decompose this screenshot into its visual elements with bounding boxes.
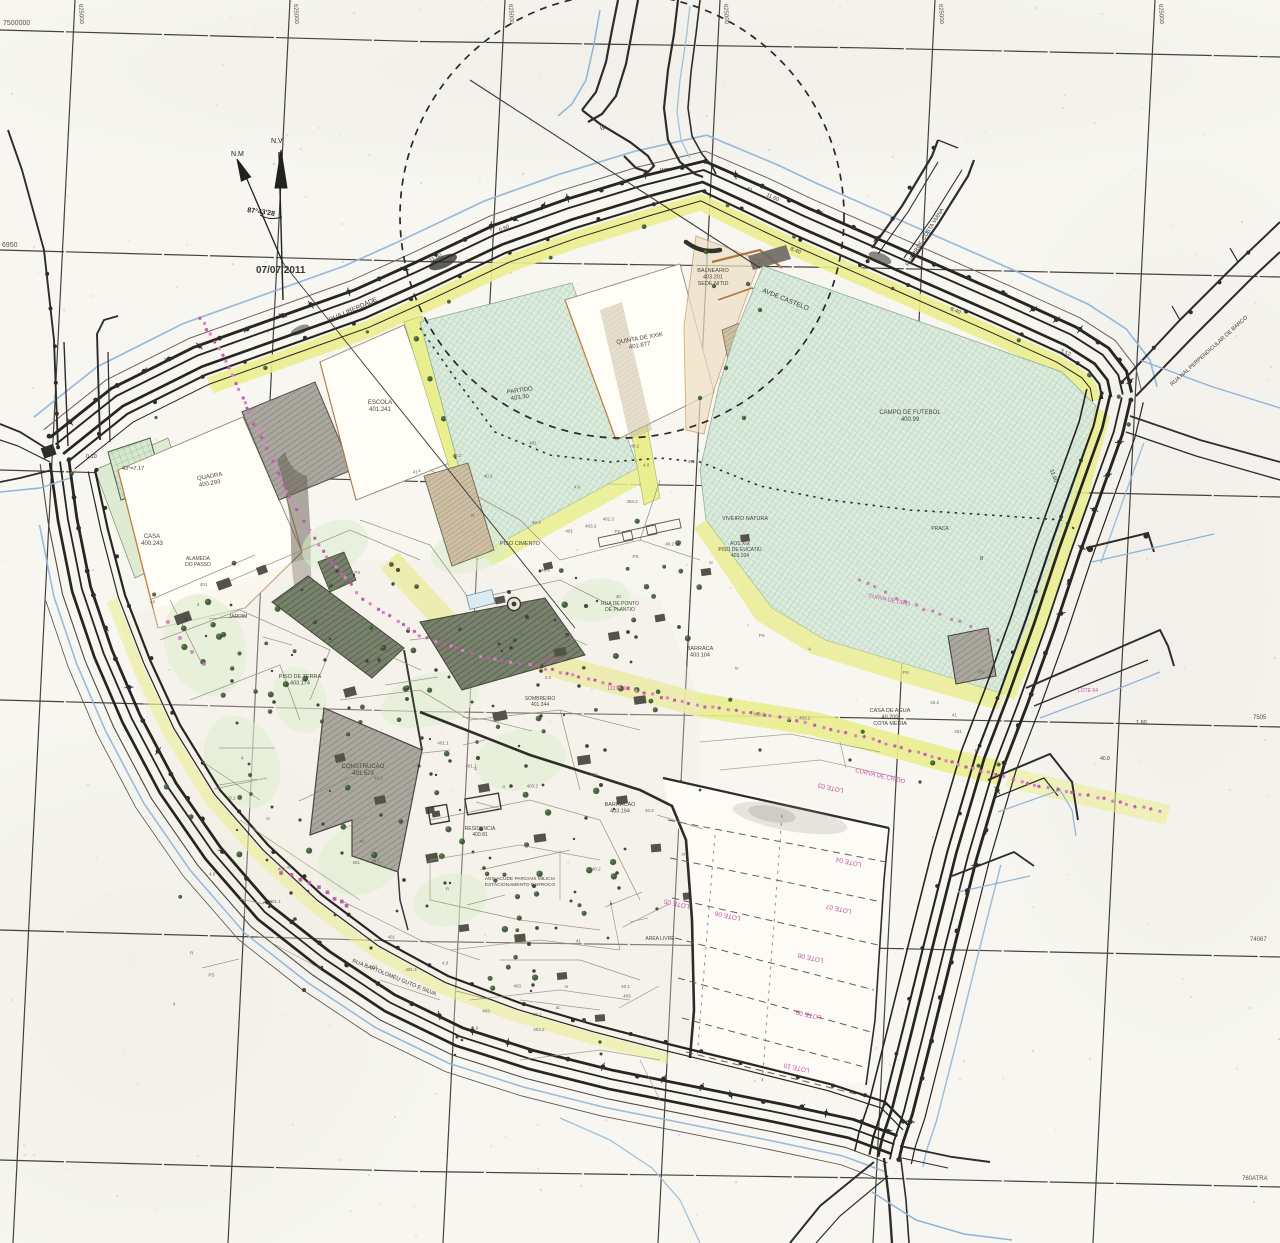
svg-text:400.243: 400.243 xyxy=(141,541,163,547)
svg-text:DE PLANTIO: DE PLANTIO xyxy=(605,607,635,613)
svg-text:sr: sr xyxy=(681,851,685,856)
svg-text:401.1: 401.1 xyxy=(465,764,477,769)
svg-text:760ATRA: 760ATRA xyxy=(1242,1176,1268,1182)
svg-text:sr: sr xyxy=(709,560,713,565)
svg-text:6950: 6950 xyxy=(2,242,18,249)
svg-text:625000: 625000 xyxy=(937,4,944,25)
svg-text:7505: 7505 xyxy=(1253,715,1267,721)
svg-text:40.8: 40.8 xyxy=(1100,756,1110,762)
svg-text:ac: ac xyxy=(556,1005,562,1010)
svg-text:DO PASSO: DO PASSO xyxy=(185,562,211,568)
svg-text:1.60: 1.60 xyxy=(1136,720,1147,726)
svg-text:403: 403 xyxy=(482,1008,490,1013)
svg-text:40.2: 40.2 xyxy=(484,474,493,479)
svg-text:403.2: 403.2 xyxy=(533,1027,545,1032)
svg-text:403.2: 403.2 xyxy=(626,499,638,504)
svg-text:625000: 625000 xyxy=(292,4,299,25)
svg-text:COTA MEDIA: COTA MEDIA xyxy=(873,721,907,727)
svg-text:400.99: 400.99 xyxy=(901,417,920,423)
svg-text:403: 403 xyxy=(370,964,378,969)
svg-text:40.2: 40.2 xyxy=(630,444,639,449)
svg-text:403.2: 403.2 xyxy=(527,784,539,789)
svg-text:401: 401 xyxy=(387,934,395,939)
svg-text:7500000: 7500000 xyxy=(3,20,30,27)
svg-text:40: 40 xyxy=(150,600,156,605)
svg-text:40.200: 40.200 xyxy=(882,715,899,721)
svg-text:PS: PS xyxy=(903,670,909,675)
svg-text:sr: sr xyxy=(266,816,270,821)
svg-text:403: 403 xyxy=(513,983,521,988)
svg-text:625000: 625000 xyxy=(77,4,84,25)
svg-text:401.344: 401.344 xyxy=(531,702,549,708)
svg-text:400.81: 400.81 xyxy=(472,832,488,838)
svg-text:40.2: 40.2 xyxy=(532,520,541,525)
svg-text:625000: 625000 xyxy=(507,4,514,25)
svg-text:401: 401 xyxy=(278,867,286,872)
svg-text:ANT. ACUDE PARCIAIS MILICIA: ANT. ACUDE PARCIAIS MILICIA xyxy=(485,876,556,882)
svg-text:41: 41 xyxy=(413,469,419,474)
svg-text:401: 401 xyxy=(565,528,573,533)
svg-text:625000: 625000 xyxy=(1157,4,1164,25)
svg-text:403.2: 403.2 xyxy=(753,712,765,717)
svg-text:41: 41 xyxy=(576,938,582,943)
svg-text:PS: PS xyxy=(978,669,984,674)
svg-text:40.1: 40.1 xyxy=(227,795,236,800)
svg-text:ESTACIONAMENTO BARROCO: ESTACIONAMENTO BARROCO xyxy=(485,882,555,888)
svg-text:PS: PS xyxy=(632,554,638,559)
svg-text:401.1: 401.1 xyxy=(437,741,449,746)
svg-text:4.0: 4.0 xyxy=(472,1025,479,1030)
svg-text:40.1: 40.1 xyxy=(621,984,630,989)
svg-text:W: W xyxy=(600,126,606,132)
svg-text:40.2: 40.2 xyxy=(665,541,674,546)
svg-text:40.2: 40.2 xyxy=(930,700,939,705)
svg-text:40.2: 40.2 xyxy=(374,775,383,780)
svg-text:401: 401 xyxy=(954,729,962,734)
svg-text:4.0: 4.0 xyxy=(442,961,449,966)
svg-text:LOTE 64: LOTE 64 xyxy=(1078,688,1098,694)
svg-text:0.10: 0.10 xyxy=(86,454,97,460)
svg-text:40.1: 40.1 xyxy=(533,1012,542,1017)
svg-text:LOTE 02: LOTE 02 xyxy=(608,686,630,692)
svg-text:07/07/2011: 07/07/2011 xyxy=(256,265,306,276)
svg-text:CAMPO DE FUTEBOL: CAMPO DE FUTEBOL xyxy=(879,410,941,416)
svg-text:SEDE NITID: SEDE NITID xyxy=(698,281,729,287)
svg-text:401.1: 401.1 xyxy=(270,899,282,904)
svg-text:PS: PS xyxy=(354,570,360,575)
svg-text:JARDIM: JARDIM xyxy=(229,614,248,620)
svg-text:401: 401 xyxy=(687,459,695,464)
svg-text:40.2: 40.2 xyxy=(592,866,601,871)
svg-text:401: 401 xyxy=(529,440,537,445)
svg-text:PISO CIMENTO: PISO CIMENTO xyxy=(500,541,541,547)
svg-text:4.0: 4.0 xyxy=(209,872,216,877)
svg-text:4.0: 4.0 xyxy=(574,484,581,489)
svg-text:401: 401 xyxy=(352,860,360,865)
svg-text:WF: WF xyxy=(660,168,669,174)
svg-text:401.3: 401.3 xyxy=(603,517,615,522)
svg-text:403.194: 403.194 xyxy=(610,809,630,815)
svg-text:401.573: 401.573 xyxy=(352,771,374,777)
svg-text:403.2: 403.2 xyxy=(585,524,597,529)
svg-text:ESCOLA: ESCOLA xyxy=(368,400,392,406)
svg-text:ac: ac xyxy=(360,838,366,843)
svg-text:sr: sr xyxy=(565,984,569,989)
svg-text:401: 401 xyxy=(200,582,208,587)
svg-text:41: 41 xyxy=(952,713,958,718)
svg-text:PS: PS xyxy=(615,529,621,534)
svg-text:BARRACA: BARRACA xyxy=(687,646,714,652)
svg-text:40: 40 xyxy=(616,594,622,599)
svg-text:CONSTRUCAO: CONSTRUCAO xyxy=(342,764,385,770)
svg-text:AREA LIVRE: AREA LIVRE xyxy=(645,936,675,942)
svg-text:CASA: CASA xyxy=(144,534,160,540)
svg-text:8: 8 xyxy=(980,556,983,562)
svg-text:4.0: 4.0 xyxy=(545,675,552,680)
svg-text:N.V: N.V xyxy=(271,138,283,145)
svg-text:N.M: N.M xyxy=(231,151,244,158)
svg-text:PS: PS xyxy=(517,631,523,636)
svg-text:403.2: 403.2 xyxy=(799,715,811,720)
svg-text:LOTE 01: LOTE 01 xyxy=(540,658,562,664)
svg-text:PRACA: PRACA xyxy=(931,526,949,532)
svg-text:ac: ac xyxy=(287,864,293,869)
svg-text:401: 401 xyxy=(590,772,598,777)
svg-text:74067: 74067 xyxy=(1250,937,1267,943)
svg-text:PS: PS xyxy=(208,973,214,978)
svg-text:4.0: 4.0 xyxy=(433,635,440,640)
svg-text:403: 403 xyxy=(623,994,631,999)
svg-text:BARRACAO: BARRACAO xyxy=(605,802,637,808)
svg-text:PS: PS xyxy=(759,633,765,638)
svg-text:40.1: 40.1 xyxy=(541,567,550,572)
svg-text:40.1: 40.1 xyxy=(371,859,380,864)
svg-text:403.104: 403.104 xyxy=(731,553,749,559)
svg-text:sr: sr xyxy=(735,665,739,670)
svg-text:4.0: 4.0 xyxy=(643,463,650,468)
svg-text:401.3: 401.3 xyxy=(405,967,417,972)
svg-text:40.2: 40.2 xyxy=(645,808,654,813)
svg-text:43°=7.17: 43°=7.17 xyxy=(122,466,144,472)
svg-text:40.2: 40.2 xyxy=(453,453,462,458)
svg-text:VIVEIRO NATURA: VIVEIRO NATURA xyxy=(722,516,768,522)
svg-text:PISO DE TERRA: PISO DE TERRA xyxy=(279,674,322,680)
svg-text:403.104: 403.104 xyxy=(690,653,710,659)
svg-text:403.174: 403.174 xyxy=(290,681,310,687)
svg-text:CASA DE AGUA: CASA DE AGUA xyxy=(870,708,911,714)
svg-text:625000: 625000 xyxy=(722,4,729,25)
svg-text:401.241: 401.241 xyxy=(369,407,391,413)
svg-text:sr: sr xyxy=(678,539,682,544)
svg-text:403.201: 403.201 xyxy=(703,275,723,281)
svg-text:BALNEARIO: BALNEARIO xyxy=(697,268,729,274)
